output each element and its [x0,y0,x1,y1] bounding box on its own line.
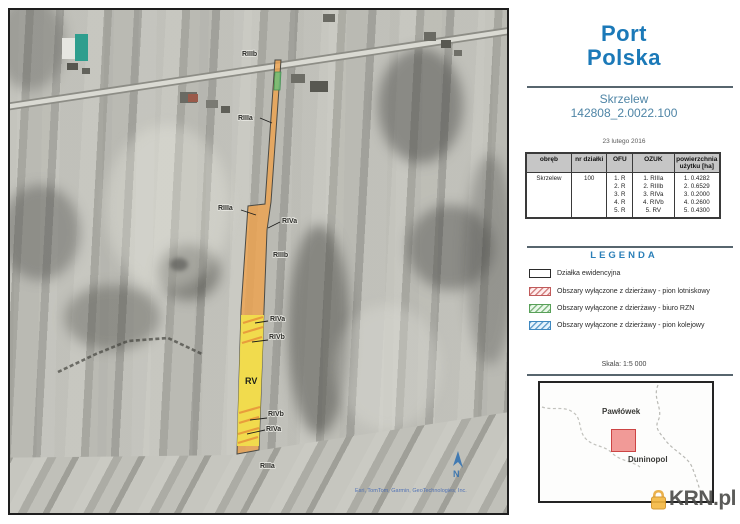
divider [527,246,733,248]
legend-item-label: Obszary wyłączone z dzierżawy - pion kol… [557,322,704,329]
legend-item-label: Obszary wyłączone z dzierżawy - pion lot… [557,288,710,295]
soil-label: RIIIa [260,463,275,470]
col-header-nr-dzialki: nr działki [571,153,607,173]
north-label: N [453,469,460,479]
legend-item-railway: Obszary wyłączone z dzierżawy - pion kol… [529,319,737,331]
parcel-id: 142808_2.0022.100 [508,106,740,120]
red-hatch-swatch-icon [529,287,551,296]
document-date: 23 lutego 2016 [508,138,740,145]
listing-page: RIIIb RIIIa RIIIa RIVa RIIIb RIVa RIVb R… [0,0,740,524]
parcel-title: Skrzelew 142808_2.0022.100 [508,92,740,120]
soil-label: RIVa [282,218,297,225]
col-header-powierzchnia: powierzchnia użytku [ha] [674,153,720,173]
col-header-obreb: obręb [526,153,571,173]
cell-obreb: Skrzelew [526,173,571,219]
col-header-ofu: OFU [607,153,633,173]
map-attribution: Esri, TomTom, Garmin, GeoTechnologies, I… [355,488,505,494]
legend-item-parcel: Działka ewidencyjna [529,267,737,279]
buildings [62,14,462,113]
blue-hatch-swatch-icon [529,321,551,330]
location-minimap[interactable]: Pawłówek Duninopol [538,381,714,503]
soil-label: RIIIa [218,205,233,212]
krn-watermark[interactable]: KRN.pl [650,487,736,511]
legend-title: LEGENDA [508,250,740,261]
soil-label: RIVa [270,316,285,323]
legend-item-label: Obszary wyłączone z dzierżawy - biuro RZ… [557,305,694,312]
soil-label: RIVb [268,411,284,418]
col-header-ozuk: OZUK [633,153,674,173]
cell-ofu: 1. R2. R3. R4. R5. R [607,173,633,219]
green-hatch-swatch-icon [529,304,551,313]
divider [527,374,733,376]
minimap-label-duninopol: Duninopol [628,455,668,464]
krn-label: KRN.pl [669,487,736,511]
legend-item-rzn: Obszary wyłączone z dzierżawy - biuro RZ… [529,302,737,314]
village-name: Skrzelew [508,92,740,106]
parcel-swatch-icon [529,269,551,278]
cell-ozuk: 1. RIIIa2. RIIIb3. RIVa4. RIVb5. RV [633,173,674,219]
north-arrow-icon: N [453,451,463,479]
tree-boundary [58,338,202,372]
logo-line2: Polska [508,46,740,70]
soil-label: RIIIa [238,115,253,122]
soil-label: RIIIb [242,51,257,58]
aerial-map[interactable]: RIIIb RIIIa RIIIa RIVa RIIIb RIVa RIVb R… [8,8,509,515]
minimap-label-pawlowek: Pawłówek [602,407,640,416]
soil-label-rv: RV [245,376,257,386]
legend-item-label: Działka ewidencyjna [557,270,620,277]
cell-nr-dzialki: 100 [571,173,607,219]
map-vector-overlay: RIIIb RIIIa RIIIa RIVa RIIIb RIVa RIVb R… [10,10,509,515]
logo-line1: Port [508,22,740,46]
port-polska-logo: Port Polska [508,22,740,70]
krn-house-icon [650,488,667,510]
legend-item-airport: Obszary wyłączone z dzierżawy - pion lot… [529,285,737,297]
parcel-table: obręb nr działki OFU OZUK powierzchnia u… [525,152,721,219]
soil-label: RIVa [266,426,281,433]
cell-powierzchnia: 1. 0.42822. 0.65293. 0.20004. 0.26005. 0… [674,173,720,219]
scale-label: Skala: 1:5 000 [508,361,740,368]
soil-label: RIVb [269,334,285,341]
soil-label: RIIIb [273,252,288,259]
table-row: Skrzelew 100 1. R2. R3. R4. R5. R 1. RII… [526,173,720,219]
parcel-green-segment [274,72,281,90]
divider [527,86,733,88]
parcel-location-marker [611,429,636,452]
